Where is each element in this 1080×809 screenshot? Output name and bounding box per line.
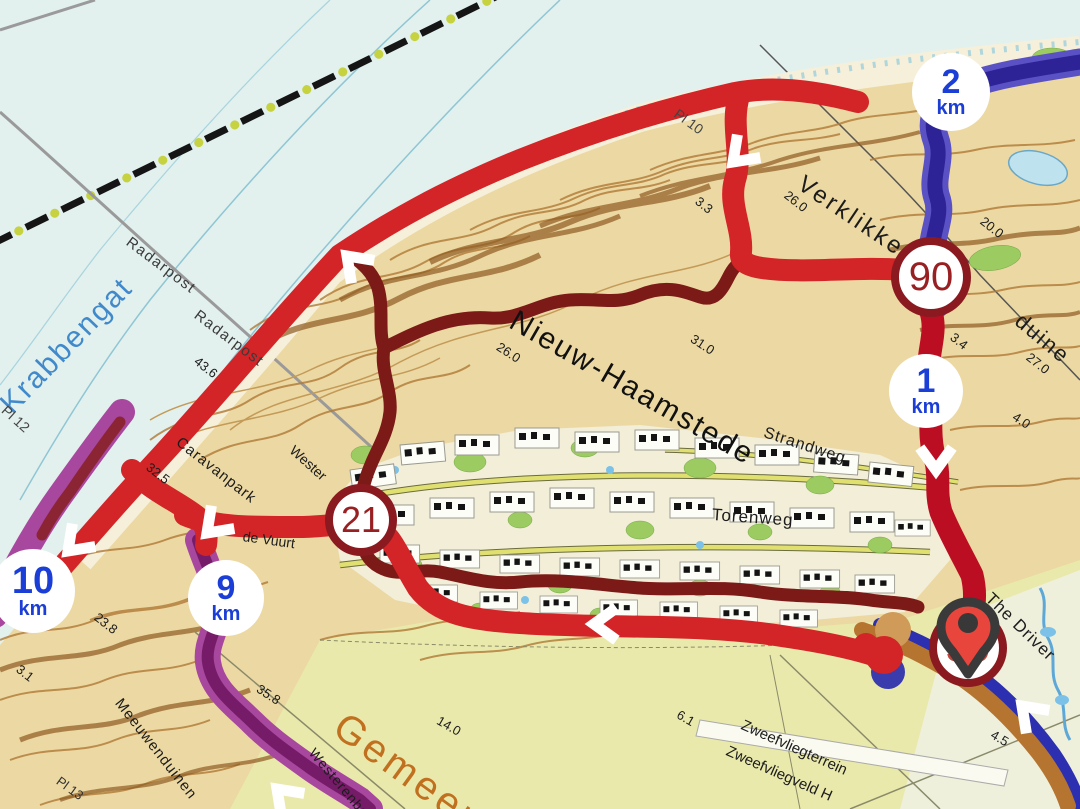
waypoint-number: 21	[341, 499, 381, 541]
location-pin-icon[interactable]	[934, 596, 1002, 684]
km-marker-unit: km	[912, 398, 941, 417]
km-marker-unit: km	[212, 605, 241, 624]
km-marker-2: 2 km	[912, 53, 990, 131]
km-marker-1: 1 km	[889, 354, 963, 428]
km-marker-unit: km	[937, 99, 966, 118]
km-marker-9: 9 km	[188, 560, 264, 636]
km-marker-value: 9	[217, 572, 236, 604]
km-marker-value: 1	[917, 365, 936, 397]
waypoint-badge-90[interactable]: 90	[891, 237, 971, 317]
km-marker-value: 2	[942, 66, 961, 98]
waypoint-badge-21[interactable]: 21	[325, 484, 397, 556]
km-marker-value: 10	[12, 563, 54, 599]
km-marker-unit: km	[19, 600, 48, 619]
waypoint-number: 90	[909, 255, 954, 300]
map-canvas[interactable]: Krabbengat Radarpost Radarpost Nieuw-Haa…	[0, 0, 1080, 809]
